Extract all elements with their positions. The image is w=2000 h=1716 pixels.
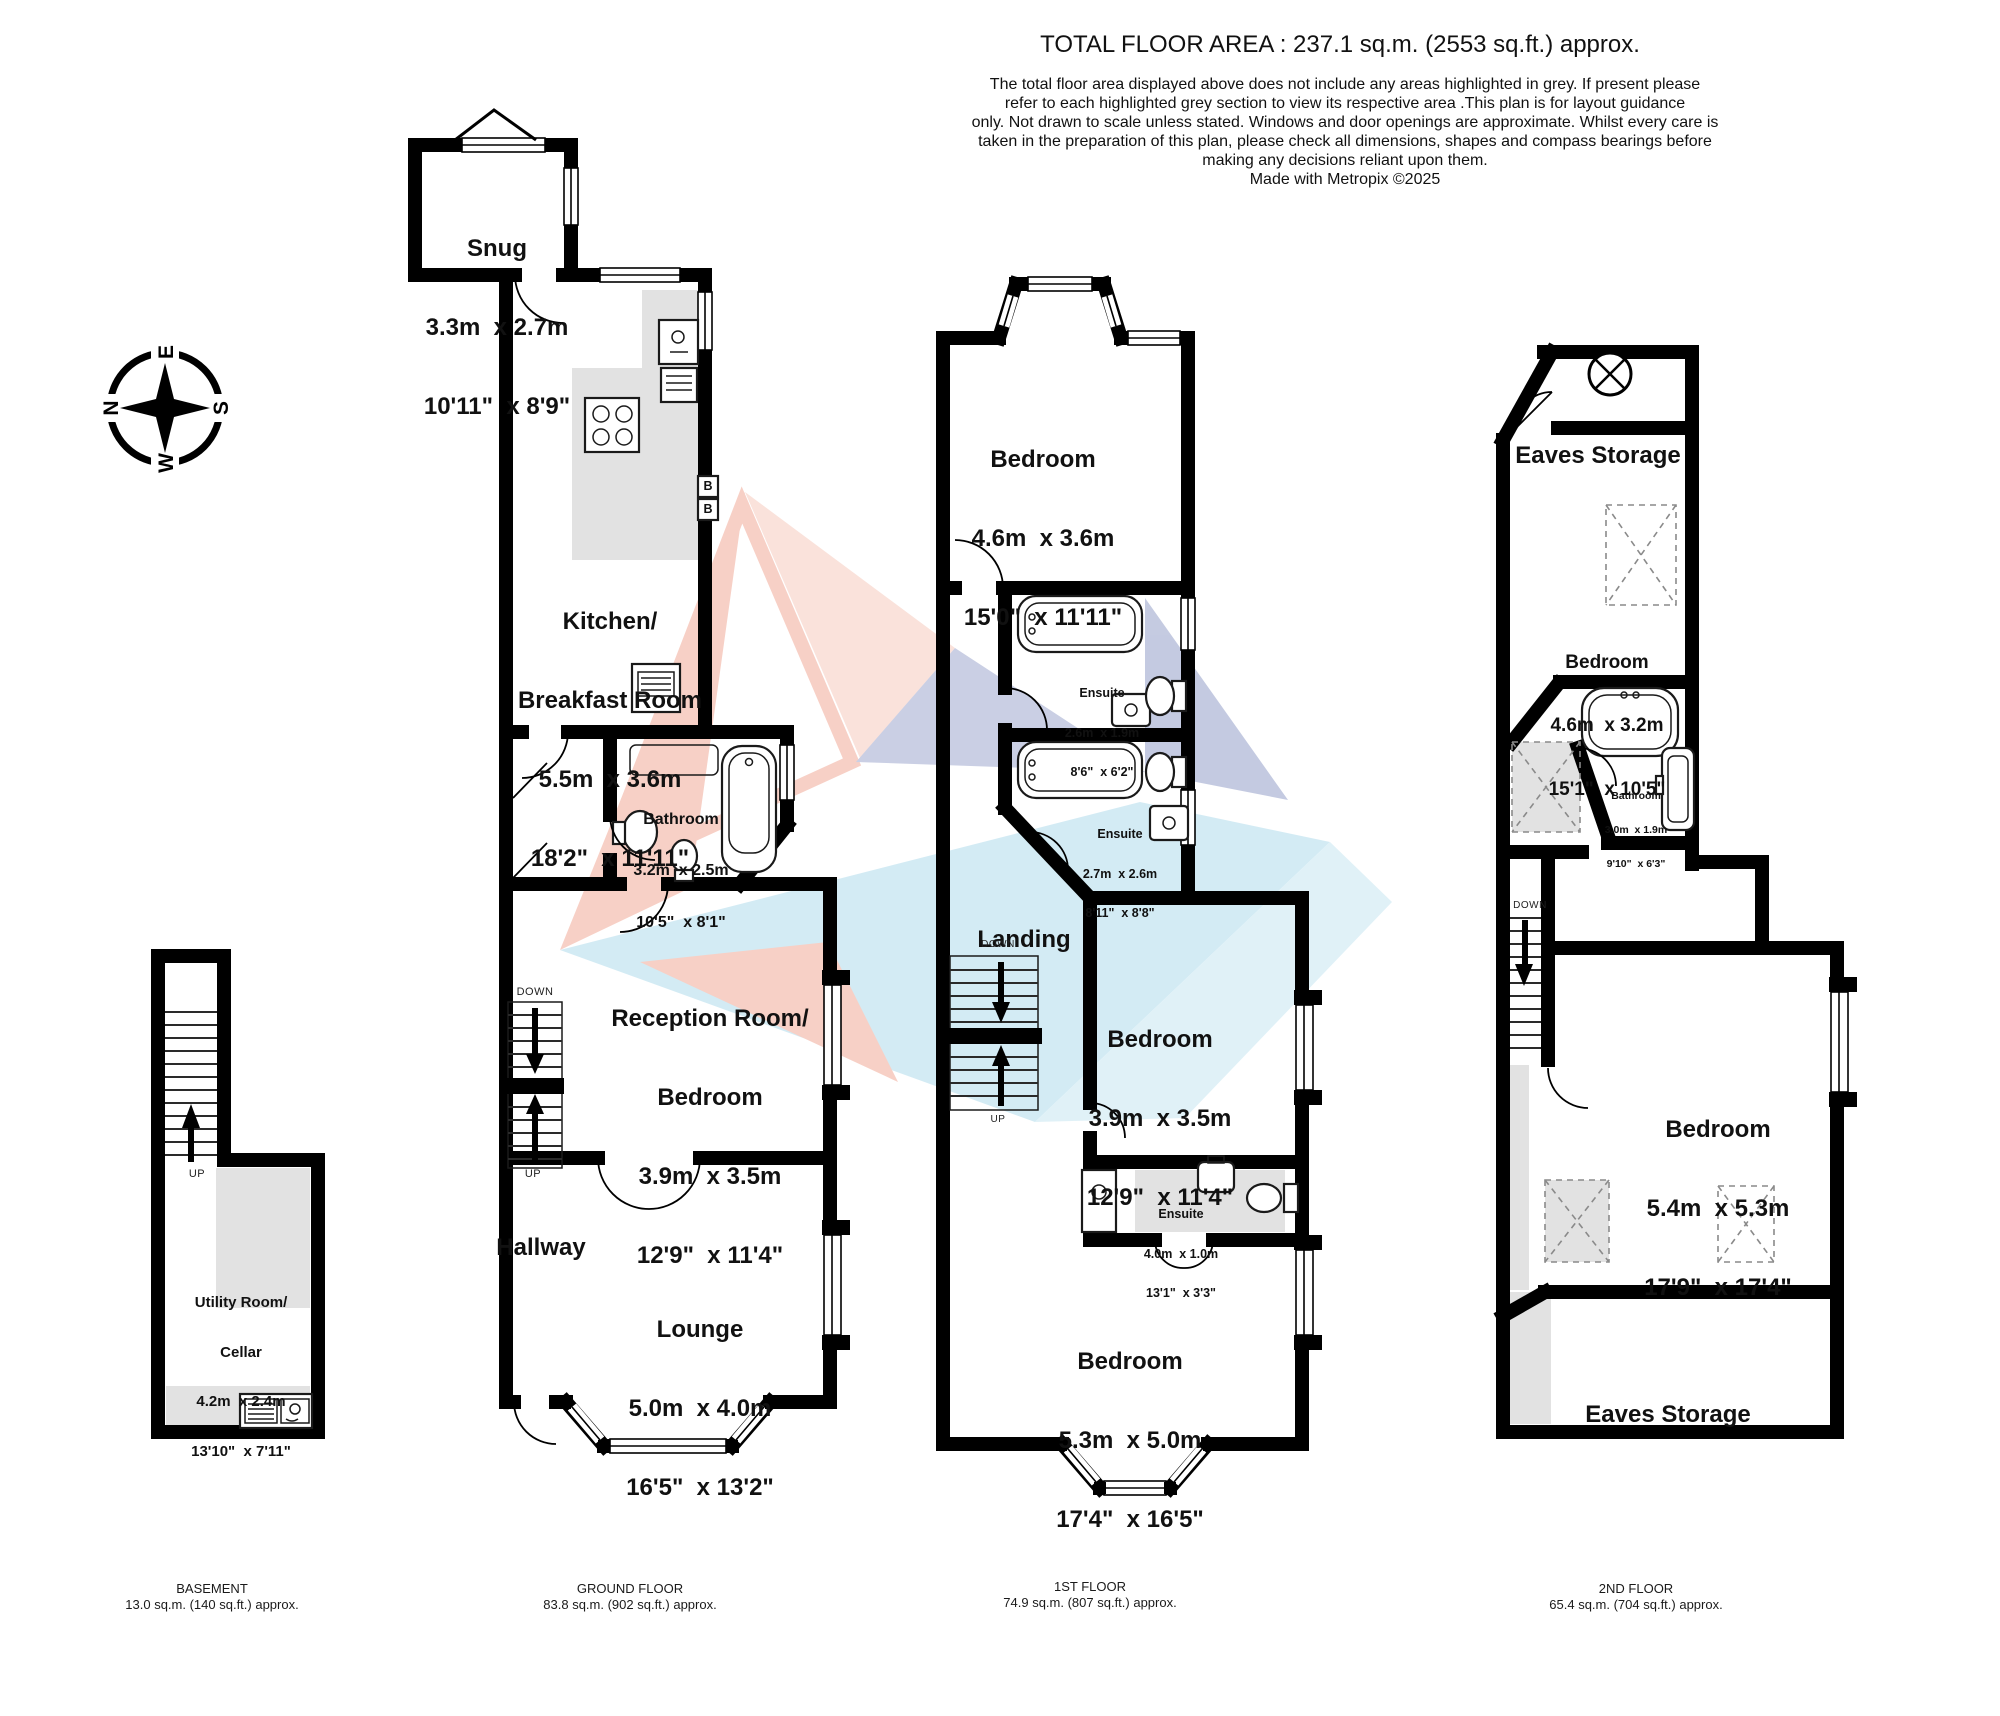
ground-bath-icon [722,746,776,872]
floorplan-page: N E S W [0,0,2000,1716]
compass-north: N [100,400,123,415]
boiler-label-1: B [703,479,712,493]
disclaimer-line-1: The total floor area displayed above doe… [990,76,1700,94]
extractor-fan-icon [1589,353,1631,395]
oven-icon [661,368,697,402]
compass-rose-icon: N E S W [96,338,233,478]
room-label-eaves-front: Eaves Storage [1515,390,1680,522]
first-down-label: DOWN [981,939,1015,950]
second-down-label: DOWN [1513,900,1547,911]
room-label-hallway: Hallway [496,1182,585,1314]
compass-west: W [155,453,178,473]
compass-east: E [155,345,178,359]
room-label-ensuite1: Ensuite 2.6m x 1.9m 8'6" x 6'2" [1065,661,1139,805]
room-label-eaves-rear: Eaves Storage [1585,1349,1750,1481]
room-label-bedroom-front-1f: Bedroom 4.6m x 3.6m 15'0" x 11'11" [964,394,1122,684]
total-floor-area-title: TOTAL FLOOR AREA : 237.1 sq.m. (2553 sq.… [1040,31,1640,59]
floor-caption-ground: GROUND FLOOR 83.8 sq.m. (902 sq.ft.) app… [543,1581,716,1612]
disclaimer-line-4: taken in the preparation of this plan, p… [978,133,1712,151]
disclaimer-line-3: only. Not drawn to scale unless stated. … [972,114,1719,132]
ground-stairs [506,1002,564,1168]
metropix-credit: Made with Metropix ©2025 [1250,171,1441,189]
room-label-utility-cellar: Utility Room/ Cellar 4.2m x 2.4m 13'10" … [191,1262,291,1493]
ensuite2-toilet-icon [1146,753,1186,791]
ground-up-label: UP [525,1168,541,1180]
floor-caption-second: 2ND FLOOR 65.4 sq.m. (704 sq.ft.) approx… [1549,1581,1722,1612]
boiler-label-2: B [703,502,712,516]
floor-caption-basement: BASEMENT 13.0 sq.m. (140 sq.ft.) approx. [125,1581,298,1612]
ensuite1-toilet-icon [1146,677,1186,715]
basement-up-label: UP [189,1168,205,1180]
basement-stairs [165,1012,217,1162]
ground-down-label: DOWN [517,986,554,998]
room-label-lounge: Lounge 5.0m x 4.0m 16'5" x 13'2" [626,1264,774,1554]
room-label-ground-bathroom: Bathroom 3.2m x 2.5m 10'5" x 8'1" [633,776,728,966]
kitchen-sink-icon [659,320,698,364]
disclaimer-line-2: refer to each highlighted grey section t… [1005,95,1685,113]
grey-highlight-areas [166,290,1609,1426]
disclaimer-line-5: making any decisions reliant upon them. [1202,152,1488,170]
room-label-bedroom-rear-2f: Bedroom 5.4m x 5.3m 17'9" x 17'4" [1644,1064,1792,1354]
room-label-bedroom-rear-1f: Bedroom 5.3m x 5.0m 17'4" x 16'5" [1056,1296,1204,1586]
ensuite3-toilet-icon [1247,1184,1298,1212]
compass-south: S [210,401,233,415]
first-up-label: UP [991,1114,1006,1125]
room-label-snug: Snug 3.3m x 2.7m 10'11" x 8'9" [424,183,570,473]
floor-caption-first: 1ST FLOOR 74.9 sq.m. (807 sq.ft.) approx… [1003,1579,1176,1610]
second-floor-stairs [1510,918,1541,1048]
hob-icon [585,398,639,452]
room-label-ensuite2: Ensuite 2.7m x 2.6m 8'11" x 8'8" [1083,802,1157,946]
room-label-second-bathroom: Bathroom 3.0m x 1.9m 9'10" x 6'3" [1605,768,1667,893]
